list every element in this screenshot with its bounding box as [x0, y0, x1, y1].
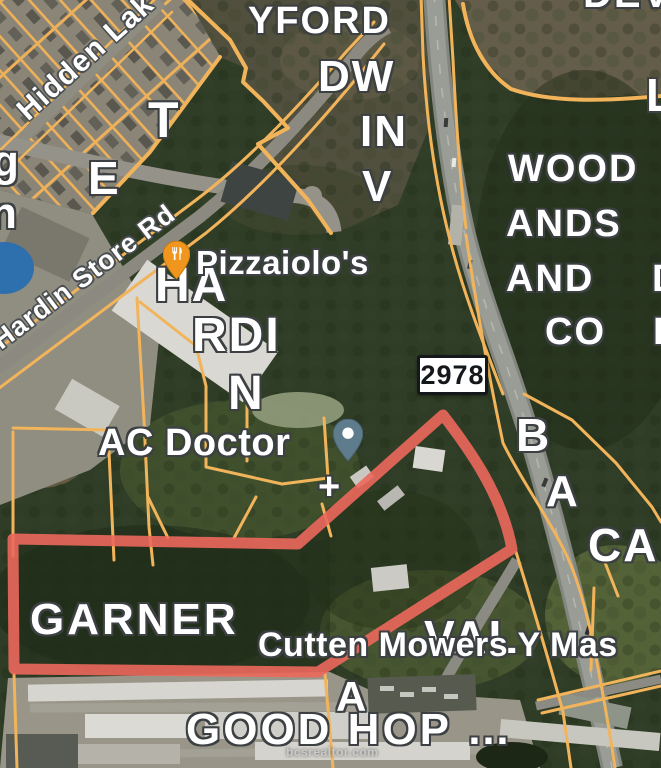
area-label-n-partial: n [0, 192, 19, 236]
poi-label-cutten-mowers[interactable]: Cutten Mowers Y Mas [258, 628, 618, 662]
area-label-dw: DW [318, 55, 395, 99]
area-label-rdi: RDI [192, 312, 281, 360]
area-label-dev-partial: DEV [583, 0, 661, 14]
area-label-ands: ANDS [506, 205, 622, 243]
place-pin-icon[interactable] [333, 419, 363, 461]
poi-label-pizzaiolos[interactable]: Pizzaiolo's [196, 246, 369, 279]
restaurant-pin-icon[interactable] [163, 241, 190, 279]
area-label-g-partial: g [0, 140, 21, 184]
area-label-e: E [88, 155, 121, 201]
area-label-d-partial-lower: D [653, 313, 661, 351]
area-label-yford: YFORD [248, 2, 391, 40]
watermark: bcsrealtor.com [286, 745, 378, 759]
area-label-b: B [516, 412, 551, 458]
area-label-d-partial-upper: D [652, 260, 661, 298]
area-label-t: T [148, 95, 181, 145]
area-label-garner: GARNER [30, 598, 239, 642]
area-label-v: V [362, 165, 393, 209]
satellite-map-canvas[interactable]: YFORD DW IN V T E g n DEV L WOOD ANDS AN… [0, 0, 661, 768]
area-label-a-upper: A [546, 470, 580, 514]
area-label-wood: WOOD [508, 150, 638, 188]
poi-label-ac-doctor[interactable]: AC Doctor [98, 424, 290, 462]
plus-marker: + [318, 468, 341, 506]
warehouse-row [85, 714, 197, 738]
route-shield-2978: 2978 [417, 355, 488, 395]
area-label-in: IN [360, 110, 408, 154]
area-label-and: AND [506, 260, 594, 298]
area-label-n-hardin: N [228, 370, 265, 418]
area-label-co: CO [545, 313, 606, 351]
area-label-l-partial: L [646, 72, 661, 118]
area-label-ca: CA [588, 522, 658, 568]
